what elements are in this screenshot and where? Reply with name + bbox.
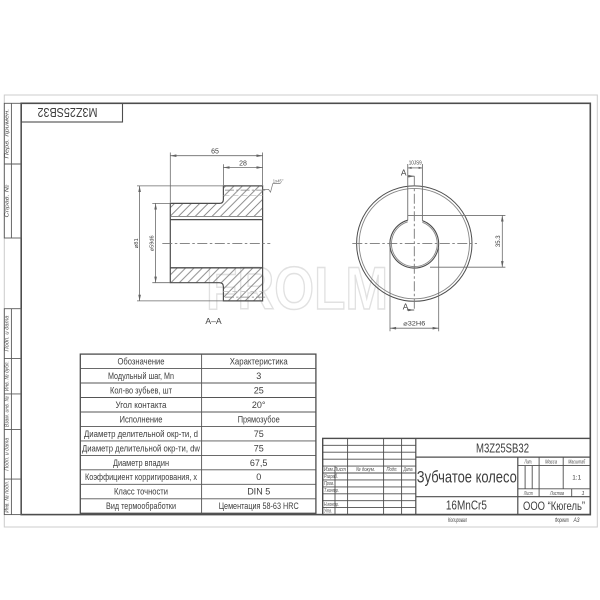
svg-text:Диаметр впадин: Диаметр впадин xyxy=(113,458,169,468)
svg-text:Дата: Дата xyxy=(403,467,413,473)
svg-text:Зубчатое колесо: Зубчатое колесо xyxy=(417,468,517,487)
svg-text:67,5: 67,5 xyxy=(250,458,268,468)
svg-text:75: 75 xyxy=(254,429,264,439)
svg-text:Подп.: Подп. xyxy=(387,467,398,473)
svg-text:Справ. №: Справ. № xyxy=(5,185,11,218)
svg-text:А3: А3 xyxy=(573,517,580,524)
svg-text:Подп. и дата: Подп. и дата xyxy=(5,438,11,471)
svg-text:Характеристика: Характеристика xyxy=(230,357,288,367)
svg-text:16MnCr5: 16MnCr5 xyxy=(446,499,487,513)
svg-text:⌀32H6: ⌀32H6 xyxy=(403,322,426,328)
svg-text:Прямозубое: Прямозубое xyxy=(238,414,280,424)
svg-text:Лит.: Лит. xyxy=(524,460,533,466)
svg-text:Изм.Лист: Изм.Лист xyxy=(324,467,346,473)
svg-text:35.3: 35.3 xyxy=(496,235,502,247)
svg-text:Исполнение: Исполнение xyxy=(120,414,163,424)
svg-text:Вид термообработки: Вид термообработки xyxy=(106,501,176,511)
svg-text:Пров.: Пров. xyxy=(324,481,334,487)
svg-text:Лист: Лист xyxy=(523,491,533,497)
svg-text:Кол-во зубьев, шт: Кол-во зубьев, шт xyxy=(110,385,172,395)
svg-text:ООО “Кюгель”: ООО “Кюгель” xyxy=(523,499,585,513)
svg-text:0: 0 xyxy=(256,472,261,482)
svg-text:A–A: A–A xyxy=(205,316,222,326)
svg-text:Взам. инв. №: Взам. инв. № xyxy=(5,396,11,427)
svg-text:⌀81: ⌀81 xyxy=(134,238,140,248)
svg-text:Инв. № дубл.: Инв. № дубл. xyxy=(5,361,11,391)
svg-text:Т.контр.: Т.контр. xyxy=(324,488,339,494)
svg-text:Утв.: Утв. xyxy=(323,509,332,515)
svg-text:65: 65 xyxy=(211,149,219,156)
svg-text:Обозначение: Обозначение xyxy=(118,357,165,367)
svg-text:Диаметр делительной окр-ти, d: Диаметр делительной окр-ти, d xyxy=(84,429,198,439)
svg-text:10JS9: 10JS9 xyxy=(409,161,422,167)
svg-text:M3Z25SB32: M3Z25SB32 xyxy=(37,105,97,119)
svg-text:Угол контакта: Угол контакта xyxy=(116,400,167,410)
svg-text:DIN 5: DIN 5 xyxy=(247,487,270,497)
svg-text:Масштаб: Масштаб xyxy=(568,460,586,466)
svg-text:Инв. № подл.: Инв. № подл. xyxy=(5,481,11,513)
svg-text:25: 25 xyxy=(254,385,264,395)
svg-text:Н.контр.: Н.контр. xyxy=(324,502,339,508)
svg-text:Листов: Листов xyxy=(549,491,564,497)
svg-text:Формат: Формат xyxy=(555,517,569,524)
svg-text:Цементация 58-63 HRC: Цементация 58-63 HRC xyxy=(219,501,299,511)
svg-text:M3Z25SB32: M3Z25SB32 xyxy=(476,441,529,455)
svg-text:Диаметр делительной окр-ти, dw: Диаметр делительной окр-ти, dw xyxy=(82,443,200,453)
svg-text:A: A xyxy=(403,301,409,311)
svg-text:⌀59d6: ⌀59d6 xyxy=(150,235,156,251)
svg-text:20°: 20° xyxy=(252,400,266,410)
svg-text:75: 75 xyxy=(254,443,264,453)
svg-text:Модульный шаг, Mn: Модульный шаг, Mn xyxy=(108,371,174,381)
svg-text:Масса: Масса xyxy=(545,460,557,466)
svg-text:1:1: 1:1 xyxy=(572,475,581,482)
svg-text:1x45°: 1x45° xyxy=(273,178,284,183)
svg-text:28: 28 xyxy=(239,160,247,167)
svg-text:1: 1 xyxy=(581,491,584,497)
svg-text:Копировал: Копировал xyxy=(448,517,467,524)
svg-text:Разраб.: Разраб. xyxy=(324,474,338,480)
svg-text:Подп. и дата: Подп. и дата xyxy=(5,316,11,352)
svg-text:№ докум.: № докум. xyxy=(356,467,375,473)
svg-text:A: A xyxy=(401,168,407,178)
svg-text:3: 3 xyxy=(256,371,261,381)
svg-text:Класс точности: Класс точности xyxy=(114,487,168,497)
svg-text:Коэффициент корригирования, x: Коэффициент корригирования, x xyxy=(85,472,197,482)
svg-text:Перв. примен.: Перв. примен. xyxy=(5,109,11,159)
